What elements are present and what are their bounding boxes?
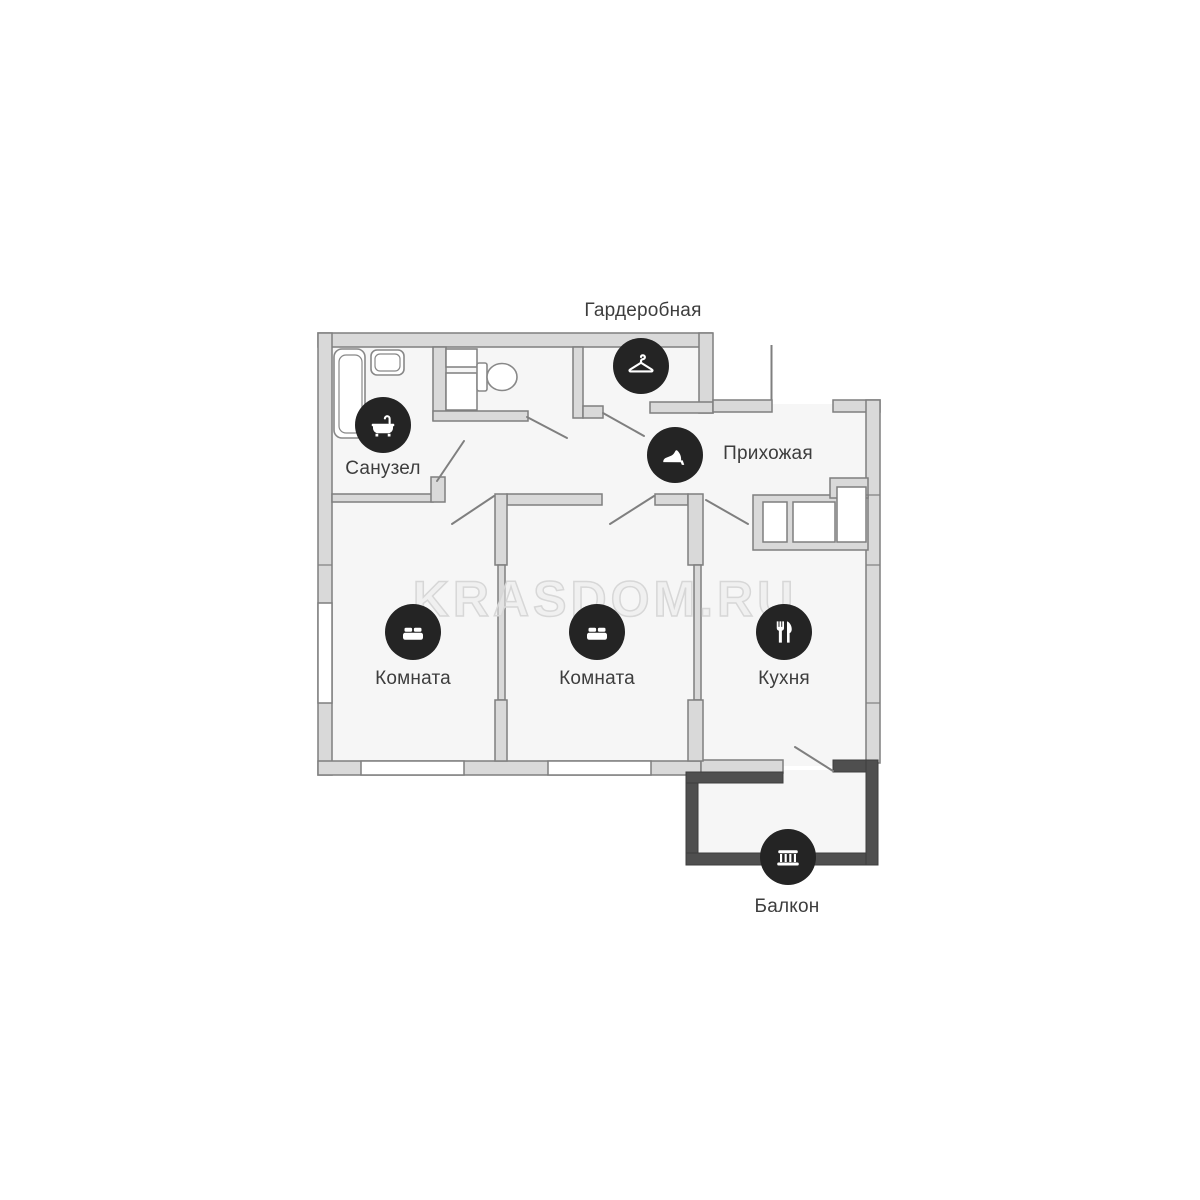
utensils-icon	[769, 617, 799, 647]
bed-icon	[398, 617, 428, 647]
window-left	[318, 603, 332, 703]
wall-divider1-bottom	[495, 700, 507, 761]
shaft-box-1	[446, 349, 477, 367]
room-label-kitchen: Кухня	[758, 668, 810, 690]
wall-wardrobe-left	[573, 347, 583, 418]
balcony-badge	[760, 829, 816, 885]
wardrobe-badge	[613, 338, 669, 394]
room-label-room1: Комната	[375, 668, 451, 690]
closet-box-3	[837, 487, 866, 542]
room-label-room2: Комната	[559, 668, 635, 690]
wall-divider2-bottom	[688, 700, 703, 761]
wall-room2-top	[655, 494, 688, 505]
wall-arm-left	[650, 402, 713, 413]
wall-divider2-top	[688, 494, 703, 565]
wall-room1-top	[507, 494, 602, 505]
wall-wardrobe-foot	[583, 406, 603, 418]
room-label-balcony: Балкон	[755, 896, 820, 918]
wall-kitchen-bottom	[701, 760, 783, 773]
closet-box-2	[793, 502, 835, 542]
room-label-bathroom: Санузел	[345, 458, 420, 480]
toilet-bowl	[487, 364, 517, 391]
wall-shaft-column	[433, 347, 446, 420]
wall-toilet-bottom	[433, 411, 528, 421]
toilet-tank	[477, 363, 487, 391]
bed-icon	[582, 617, 612, 647]
wall-bathroom-bottom	[332, 494, 433, 502]
wall-left	[318, 333, 332, 775]
floorplan-page: KRASDOM.RU	[0, 0, 1200, 1200]
wall-arm-right	[713, 400, 772, 412]
wall-divider1-top	[495, 494, 507, 565]
room2-badge	[569, 604, 625, 660]
room1-badge	[385, 604, 441, 660]
window-bottom-2	[548, 761, 651, 775]
room-label-hallway: Прихожая	[723, 443, 813, 465]
wall-wardrobe-right	[699, 333, 713, 413]
hanger-icon	[626, 351, 656, 381]
kitchen-badge	[756, 604, 812, 660]
railing-icon	[773, 842, 803, 872]
bathtub-icon	[368, 410, 398, 440]
closet-box-1	[763, 502, 787, 542]
shoe-icon	[660, 440, 690, 470]
wall-right	[866, 400, 880, 763]
shaft-box-2	[446, 373, 477, 410]
bathroom-badge	[355, 397, 411, 453]
window-bottom-1	[361, 761, 464, 775]
hallway-badge	[647, 427, 703, 483]
room-label-wardrobe: Гардеробная	[584, 300, 701, 322]
